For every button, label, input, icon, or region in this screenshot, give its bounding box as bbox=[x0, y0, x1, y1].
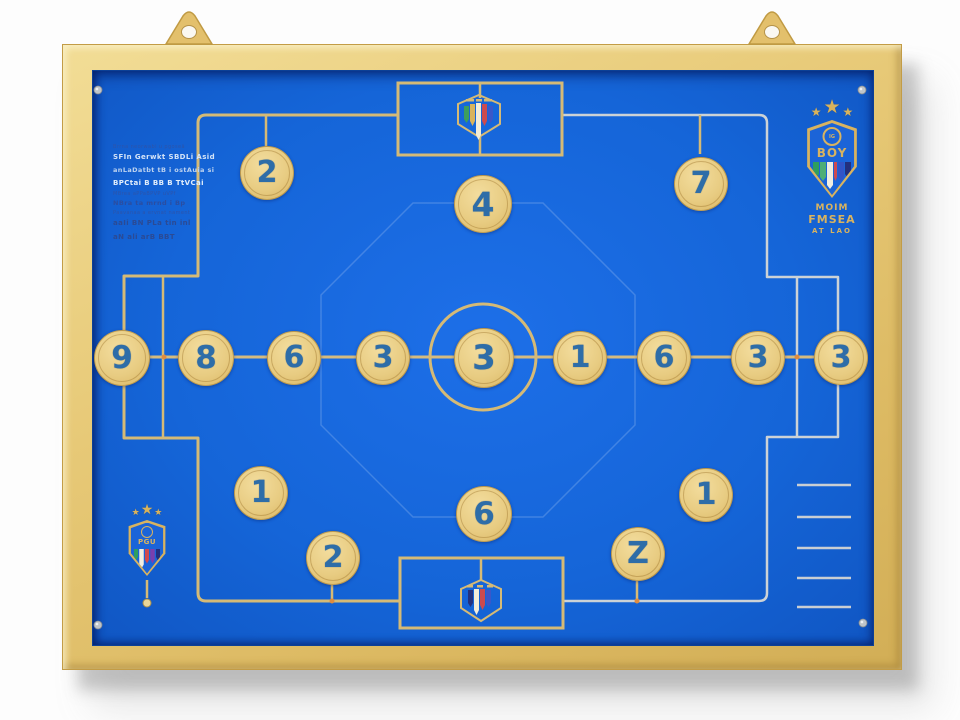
star-icon: ★ bbox=[843, 106, 854, 118]
player-number: 7 bbox=[691, 169, 712, 199]
hanging-hook-left bbox=[166, 12, 212, 44]
badge-text-line: MOIM bbox=[798, 203, 866, 213]
wall-background: Brrna neorwabi u pgoseā SFIn Gerwkt SBDL… bbox=[0, 0, 960, 720]
stripe-red bbox=[834, 162, 837, 181]
player-number: 3 bbox=[748, 343, 769, 373]
player-number: 1 bbox=[696, 480, 717, 510]
info-text-line: aN ali arB BBT bbox=[113, 233, 333, 241]
info-text-line: BPCtai B BB B TtVCai bbox=[113, 179, 333, 187]
crest-letters: PGU bbox=[130, 538, 165, 546]
player-number: 6 bbox=[654, 343, 675, 373]
stripe-lightgreen bbox=[820, 162, 826, 181]
star-icon: ★ bbox=[811, 106, 822, 118]
player-disc[interactable]: 1 bbox=[679, 468, 733, 522]
stripe-blue bbox=[838, 162, 844, 181]
info-text-line: Paavanaa a ervnat nament bbox=[113, 210, 333, 216]
player-number: 6 bbox=[473, 499, 495, 530]
player-disc[interactable]: 1 bbox=[234, 466, 288, 520]
shield-field: PGU bbox=[130, 523, 165, 574]
player-disc[interactable]: Z bbox=[611, 527, 665, 581]
star-icon: ★ bbox=[154, 509, 162, 518]
stripe-white bbox=[827, 162, 833, 189]
info-text-line: aaIi BN PLa tin inl bbox=[113, 219, 333, 227]
badge-text-lines: MOIM FMSEA AT LAO bbox=[798, 203, 866, 235]
player-number: 3 bbox=[373, 343, 394, 373]
player-number: 9 bbox=[111, 343, 133, 374]
player-disc[interactable]: 8 bbox=[178, 330, 234, 386]
player-disc[interactable]: 2 bbox=[306, 531, 360, 585]
player-number: 1 bbox=[570, 343, 591, 373]
crest-letters: BOY bbox=[808, 146, 856, 160]
player-disc[interactable]: 2 bbox=[240, 146, 294, 200]
player-disc[interactable]: 6 bbox=[267, 331, 321, 385]
info-text-line: SFIn Gerwkt SBDLi Asid bbox=[113, 153, 333, 161]
player-disc[interactable]: 9 bbox=[94, 330, 150, 386]
player-disc[interactable]: 6 bbox=[637, 331, 691, 385]
shield-field: IG BOY bbox=[808, 123, 856, 195]
info-text-line: Brrna neorwabi u pgoseā bbox=[113, 144, 333, 150]
federation-badge-large: ★ ★ ★ IG BOY MOIM bbox=[798, 96, 866, 235]
player-number: 8 bbox=[195, 343, 217, 374]
badge-text-line: AT LAO bbox=[798, 227, 866, 235]
badge-shield: PGU bbox=[127, 520, 167, 576]
player-number: 3 bbox=[472, 341, 496, 375]
info-text-line: NBra ta mrnd i Bp bbox=[113, 199, 333, 207]
player-disc[interactable]: 1 bbox=[553, 331, 607, 385]
crest-circle-text: IG bbox=[829, 134, 835, 140]
player-disc[interactable]: 4 bbox=[454, 175, 512, 233]
info-text-line: anLaDatbt tB i ostAuia si bbox=[113, 166, 333, 174]
player-disc[interactable]: 3 bbox=[454, 328, 514, 388]
star-icon: ★ bbox=[141, 503, 154, 517]
crest-circle bbox=[141, 526, 153, 538]
player-disc[interactable]: 6 bbox=[456, 486, 512, 542]
player-number: 4 bbox=[472, 188, 495, 221]
federation-badge-small: ★ ★ ★ PGU bbox=[119, 501, 175, 576]
player-disc[interactable]: 7 bbox=[674, 157, 728, 211]
stripe-red bbox=[145, 549, 150, 564]
player-disc[interactable]: 3 bbox=[356, 331, 410, 385]
player-number: 1 bbox=[251, 478, 272, 508]
badge-stars: ★ ★ ★ bbox=[119, 501, 175, 518]
info-text-line: MBrea aPPaBPVP uVPf bbox=[113, 191, 333, 197]
player-number: 6 bbox=[284, 343, 305, 373]
player-disc[interactable]: 3 bbox=[731, 331, 785, 385]
player-number: Z bbox=[627, 539, 649, 569]
crest-circle: IG bbox=[823, 127, 842, 146]
player-disc[interactable]: 3 bbox=[814, 331, 868, 385]
star-icon: ★ bbox=[823, 98, 840, 117]
hanging-hook-right bbox=[749, 12, 795, 44]
star-icon: ★ bbox=[132, 509, 140, 518]
player-number: 2 bbox=[323, 543, 344, 573]
info-text-block: Brrna neorwabi u pgoseā SFIn Gerwkt SBDL… bbox=[113, 144, 333, 241]
player-number: 2 bbox=[257, 158, 278, 188]
player-number: 3 bbox=[831, 343, 852, 373]
badge-text-line: FMSEA bbox=[798, 213, 866, 226]
badge-stars: ★ ★ ★ bbox=[798, 96, 866, 118]
badge-shield: IG BOY bbox=[805, 120, 859, 198]
stripe-purple bbox=[150, 549, 155, 564]
